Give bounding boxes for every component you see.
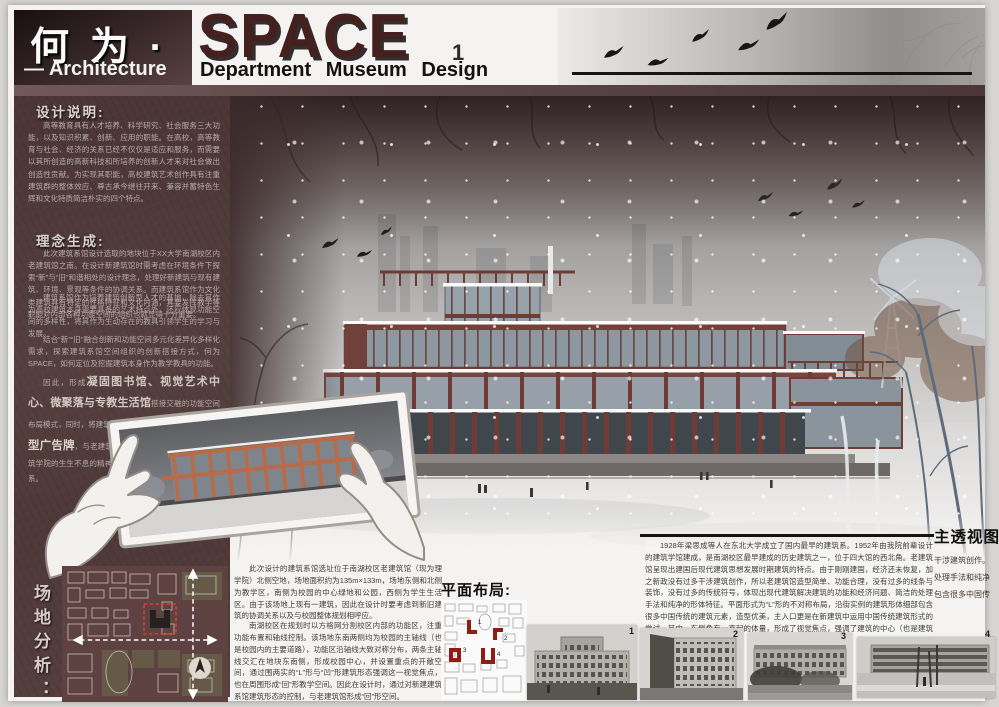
site-description-p1: 此次设计的建筑系馆选址位于南湖校区老建筑馆（现为理学院）北侧空地，场地面积约为1… [234,563,442,622]
photo-4 [857,637,995,698]
presentation-board: 何 为 · SPACE 1 — Architecture Department … [0,0,999,707]
photo-label-2: 2 [733,629,738,639]
design-note-heading: 设计说明: [36,101,105,121]
concept-heading: 理念生成: [36,230,105,250]
hand-phone-illustration [20,392,440,582]
photo-label-1: 1 [629,626,634,636]
photo-label-4: 4 [985,629,990,639]
photo-1 [527,625,637,700]
main-view-label: 主透视图 [934,525,999,547]
concept-p2: 结合“新”“旧”融合创新和功能空间多元化差异化多样化需求，探索建筑系馆空间组织的… [28,334,220,370]
main-view-pointer-line [640,534,934,537]
photo-2 [640,628,743,700]
photo-3 [748,633,852,700]
concept-p3-lead: 因此，形成 [43,378,87,387]
plan-layout-heading: 平面布局: [441,579,511,600]
design-note-p1: 高等教育具有人才培养、科学研究、社会服务三大功能，以及知识积累、创新、应用的职能… [28,120,220,205]
main-view-notes: 干涉建筑创作。 处理手法和纯净 包含很多中国传 [934,552,994,604]
header-rule [572,72,972,75]
site-analysis-heading: 场地分析： [28,584,53,704]
subtitle-architecture: — Architecture [24,58,167,81]
main-view-note-1: 干涉建筑创作。 [934,552,994,569]
maroon-divider-band [14,85,985,96]
concept-p1: 此次建筑系馆设计选取的地块位于ΧΧ大学南湖校区内老建筑馆之南。在设计新建筑馆时需… [28,248,220,321]
photo-label-3: 3 [841,631,846,641]
main-view-note-3: 包含很多中国传 [934,586,994,603]
site-analysis-map [62,566,228,702]
site-description-p2: 南湖校区在规划时以方格网分割校区内部的功能区，注重功能布置和轴线控制。该场地东南… [234,620,442,703]
subtitle-department: Department Museum Design [200,59,488,82]
main-view-note-2: 处理手法和纯净 [934,569,994,586]
plan-layout-sketch: 1 2 3 4 [441,600,527,700]
